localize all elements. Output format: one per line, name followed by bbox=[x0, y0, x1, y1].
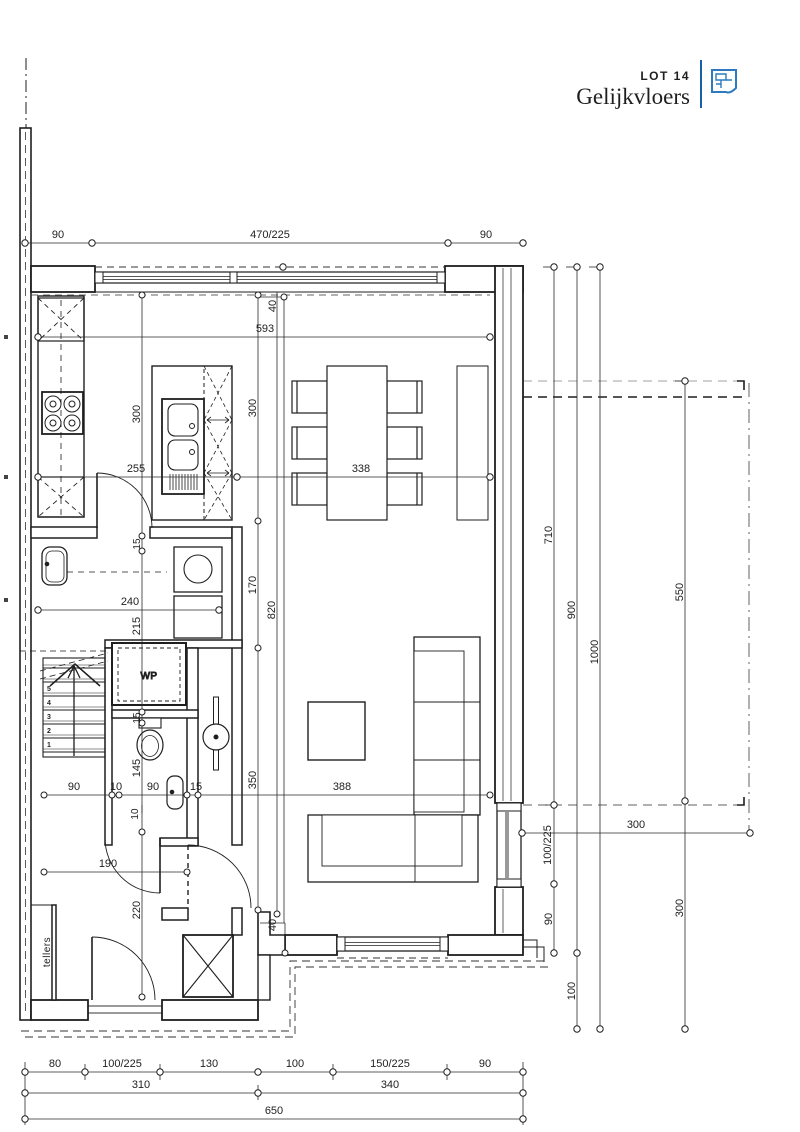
hand-basin bbox=[167, 776, 183, 809]
dim-10b: 10 bbox=[130, 808, 141, 820]
dim-b-340: 340 bbox=[381, 1079, 399, 1091]
kitchen-sink bbox=[162, 399, 204, 494]
window-bottom-150x225 bbox=[337, 937, 448, 951]
dim-90b: 90 bbox=[147, 781, 159, 793]
dim-top-470-225: 470/225 bbox=[250, 229, 290, 241]
built-in-cabinet bbox=[183, 935, 233, 997]
floor-name-label: Gelijkvloers bbox=[576, 84, 690, 109]
lot-label: LOT 14 bbox=[640, 69, 690, 83]
dim-820: 820 bbox=[266, 601, 278, 619]
dim-b-650: 650 bbox=[265, 1105, 283, 1117]
dim-15a: 15 bbox=[132, 538, 143, 550]
cooktop bbox=[42, 392, 83, 434]
drawing-sheet: LOT 14 Gelijkvloers bbox=[0, 0, 800, 1132]
dim-b-100: 100 bbox=[286, 1058, 304, 1070]
svg-text:1: 1 bbox=[47, 742, 51, 749]
stair-tread-numbers: 1 2 3 4 5 bbox=[47, 686, 51, 749]
kitchen-counter-left bbox=[38, 296, 84, 517]
dim-300-h: 300 bbox=[627, 819, 645, 831]
dim-90a: 90 bbox=[68, 781, 80, 793]
dim-300-left: 300 bbox=[131, 405, 143, 423]
dim-145: 145 bbox=[131, 759, 143, 777]
dim-90-right: 90 bbox=[543, 913, 555, 925]
wp-label: WP bbox=[140, 671, 157, 682]
svg-text:2: 2 bbox=[47, 728, 51, 735]
dim-190: 190 bbox=[99, 858, 117, 870]
dim-b-90: 90 bbox=[479, 1058, 491, 1070]
door-bathroom bbox=[97, 473, 152, 528]
dim-710: 710 bbox=[543, 526, 555, 544]
corridor-basin bbox=[203, 697, 229, 770]
floorplan-icon bbox=[712, 70, 736, 93]
dim-40-bottom: 40 bbox=[267, 919, 279, 931]
dim-b-150-225: 150/225 bbox=[370, 1058, 410, 1070]
dim-1000: 1000 bbox=[589, 640, 601, 664]
washbasin bbox=[42, 547, 67, 585]
chair bbox=[387, 427, 422, 459]
washing-machine bbox=[174, 547, 222, 592]
title-block: LOT 14 Gelijkvloers bbox=[576, 60, 736, 109]
dim-550: 550 bbox=[674, 583, 686, 601]
party-wall-left bbox=[4, 58, 31, 1020]
window-right-100x225 bbox=[497, 803, 521, 887]
dim-300-v: 300 bbox=[674, 899, 686, 917]
dim-388: 388 bbox=[333, 781, 351, 793]
entrance-hall: tellers bbox=[42, 935, 233, 997]
dim-40-top: 40 bbox=[267, 300, 279, 312]
dim-b-80: 80 bbox=[49, 1058, 61, 1070]
dim-255: 255 bbox=[127, 463, 145, 475]
dim-b-310: 310 bbox=[132, 1079, 150, 1091]
staircase: 1 2 3 4 5 bbox=[20, 651, 108, 757]
dim-350: 350 bbox=[247, 771, 259, 789]
dining-table-set bbox=[292, 366, 422, 520]
window-top-470x225 bbox=[95, 272, 445, 283]
chair bbox=[387, 381, 422, 413]
door-front bbox=[88, 937, 162, 1013]
floor-plan-canvas: LOT 14 Gelijkvloers bbox=[0, 0, 800, 1132]
tellers-label: tellers bbox=[42, 937, 53, 967]
kitchen-island bbox=[152, 366, 232, 520]
terrace bbox=[523, 381, 749, 832]
dim-220: 220 bbox=[131, 901, 143, 919]
coffee-table bbox=[308, 702, 365, 760]
dim-170: 170 bbox=[247, 576, 259, 594]
dim-15c: 15 bbox=[190, 781, 202, 793]
door-living bbox=[188, 845, 251, 908]
dim-b-100-225: 100/225 bbox=[102, 1058, 142, 1070]
heat-pump: WP bbox=[112, 643, 186, 705]
dim-240: 240 bbox=[121, 596, 139, 608]
dim-300-right: 300 bbox=[247, 399, 259, 417]
dim-900: 900 bbox=[566, 601, 578, 619]
dim-10a: 10 bbox=[110, 781, 122, 793]
dim-215: 215 bbox=[131, 617, 143, 635]
island-upper-cabinets bbox=[204, 366, 232, 520]
dim-338: 338 bbox=[352, 463, 370, 475]
chair bbox=[387, 473, 422, 505]
svg-text:5: 5 bbox=[47, 686, 51, 693]
svg-text:3: 3 bbox=[47, 714, 51, 721]
dim-15b: 15 bbox=[132, 712, 143, 724]
chair bbox=[292, 427, 327, 459]
svg-text:4: 4 bbox=[47, 700, 51, 707]
chair bbox=[292, 381, 327, 413]
dim-top-90l: 90 bbox=[52, 229, 64, 241]
dim-top-90r: 90 bbox=[480, 229, 492, 241]
dim-100-right: 100 bbox=[566, 982, 578, 1000]
chair bbox=[292, 473, 327, 505]
dim-100-225-right: 100/225 bbox=[542, 825, 554, 865]
sideboard bbox=[457, 366, 488, 520]
dryer-cabinet bbox=[174, 596, 222, 638]
dining-table bbox=[327, 366, 387, 520]
dim-b-130: 130 bbox=[200, 1058, 218, 1070]
dim-593: 593 bbox=[256, 323, 274, 335]
